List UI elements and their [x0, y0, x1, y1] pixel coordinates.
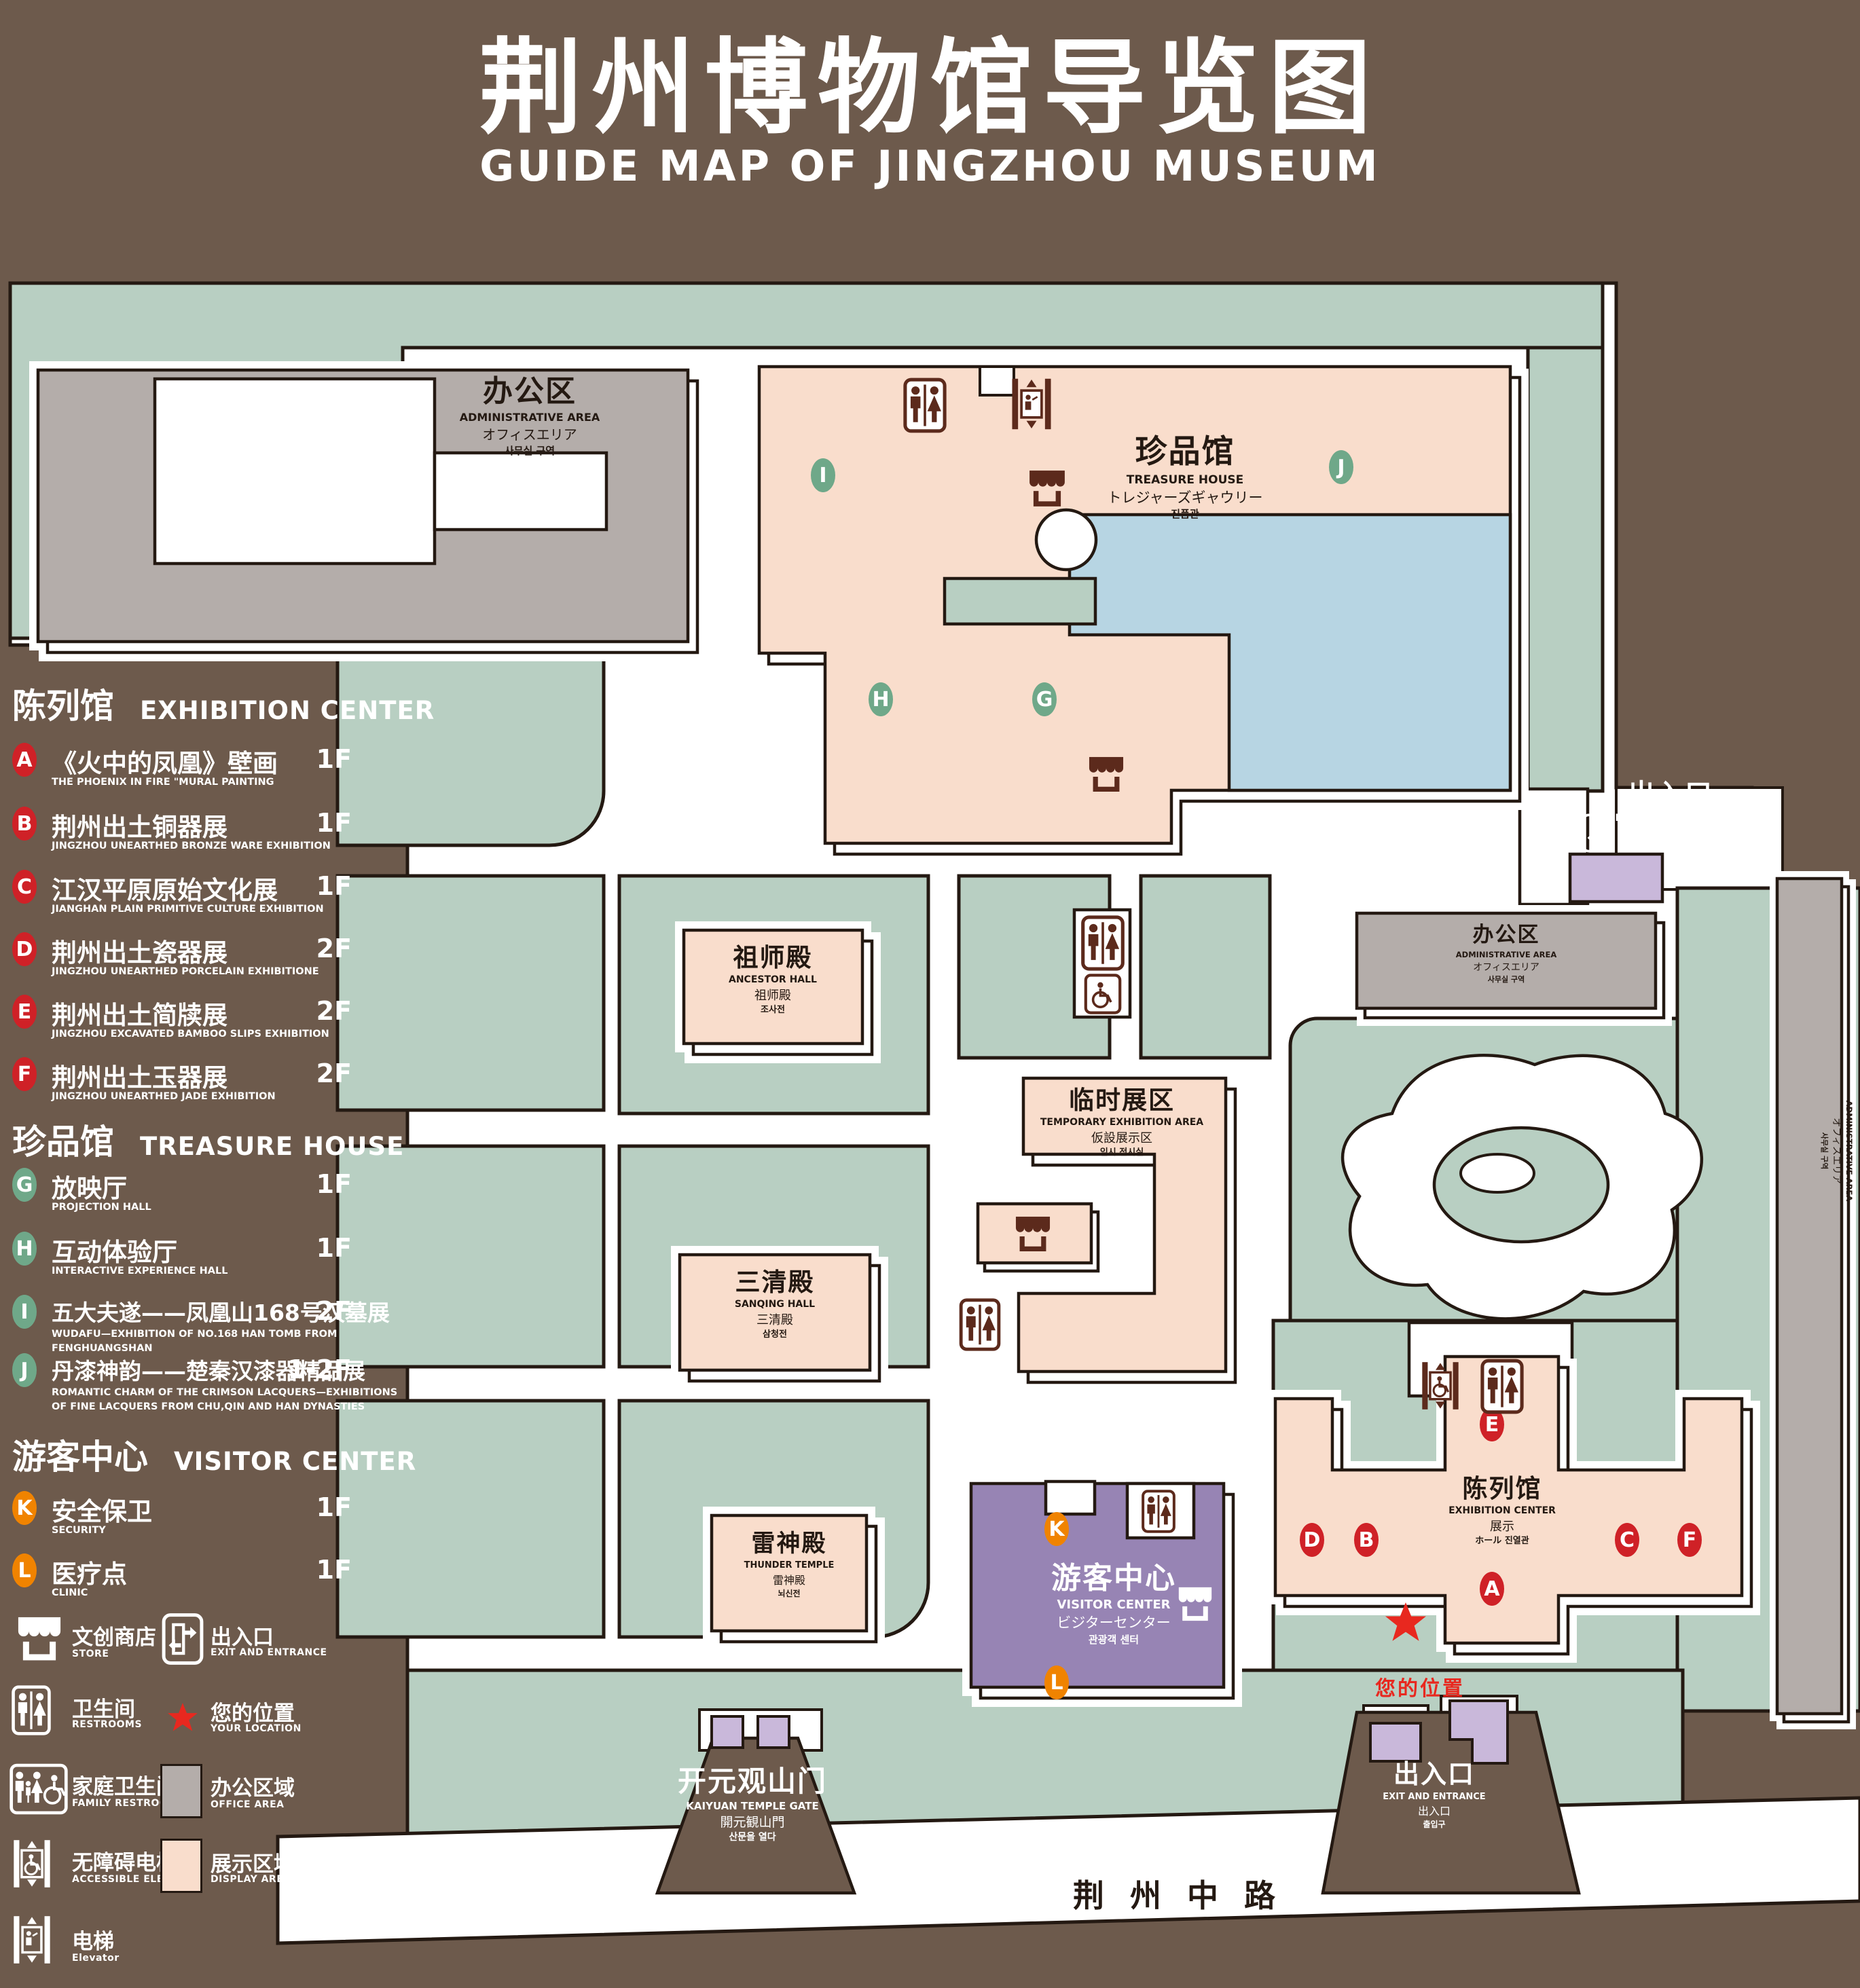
family-restroom-icon: [1081, 974, 1125, 1014]
kaiyuan-gate-label: 开元观山门 KAIYUAN TEMPLE GATE 開元観山門 산문을 열다: [651, 1765, 854, 1843]
legend-heading-visitor: 游客中心VISITOR CENTER: [12, 1430, 416, 1479]
admin-right-strip-label: 办公区 ADMINISTRATIVE AREA オフィスエリア 사무실 구역: [1779, 1151, 1840, 1436]
exit-bottom-right-label: 出入口 EXIT AND ENTRANCE 出入口 출입구: [1332, 1760, 1536, 1829]
accessible-elevator-icon: [1421, 1358, 1460, 1414]
exit-icon: [162, 1612, 204, 1666]
your-location-star-icon: [1384, 1602, 1427, 1643]
exhibition-center-label: 陈列馆 EXHIBITION CENTER 展示 ホール 진열관: [1366, 1475, 1638, 1547]
marker-l: L: [1044, 1665, 1069, 1699]
elevator-icon: [1010, 375, 1053, 433]
elevator-label: 电梯: [72, 1924, 114, 1955]
legend-heading-treasure: 珍品馆TREASURE HOUSE: [12, 1115, 404, 1164]
accessible-elevator-icon: [12, 1836, 52, 1892]
marker-d: D: [1300, 1523, 1324, 1557]
family-restroom-icon: [10, 1763, 68, 1816]
marker-g: G: [1032, 682, 1057, 716]
guide-map-poster: 荆州博物馆导览图 GUIDE MAP OF JINGZHOU MUSEUM 陈列…: [0, 0, 1860, 1988]
elevator-icon: [12, 1912, 52, 1968]
exit-label: 出入口: [211, 1620, 274, 1651]
thunder-temple-label: 雷神殿 THUNDER TEMPLE 雷神殿 뇌신전: [670, 1531, 908, 1598]
marker-b: B: [1354, 1523, 1379, 1557]
store-icon: [1087, 750, 1126, 798]
office-area-swatch: [160, 1764, 202, 1818]
store-icon: [1013, 1210, 1053, 1257]
store-icon: [15, 1615, 64, 1662]
your-location-text: 您的位置: [1375, 1672, 1465, 1701]
restroom-icon: [1080, 915, 1126, 971]
marker-i: I: [811, 458, 835, 492]
store-label: 文创商店: [72, 1620, 156, 1651]
restrooms-label: 卫生间: [72, 1692, 135, 1723]
location-star-icon: [167, 1701, 198, 1734]
map-canvas: [0, 0, 1860, 1988]
restroom-icon: [959, 1298, 1001, 1351]
display-area-swatch: [160, 1839, 202, 1893]
restroom-icon: [11, 1685, 52, 1735]
marker-h: H: [869, 682, 893, 716]
exit-icon: [1580, 813, 1616, 853]
restroom-icon: [1480, 1358, 1524, 1415]
page-subtitle: GUIDE MAP OF JINGZHOU MUSEUM: [0, 141, 1860, 191]
marker-a: A: [1480, 1572, 1504, 1606]
marker-j: J: [1329, 450, 1353, 484]
restroom-icon: [1139, 1490, 1178, 1533]
marker-c: C: [1615, 1523, 1639, 1557]
restroom-icon: [903, 378, 947, 433]
store-icon: [1176, 1582, 1214, 1625]
temporary-exhibition-label: 临时展区 TEMPORARY EXHIBITION AREA 仮設展示区 임시 …: [986, 1086, 1258, 1158]
admin-top-left-label: 办公区 ADMINISTRATIVE AREA オフィスエリア 사무실 구역: [360, 375, 699, 456]
marker-f: F: [1677, 1523, 1702, 1557]
office-area-label: 办公区域: [211, 1771, 295, 1801]
legend-heading-exhibition: 陈列馆EXHIBITION CENTER: [12, 679, 435, 728]
display-area-label: 展示区域: [211, 1847, 295, 1877]
marker-k: K: [1044, 1512, 1069, 1546]
road-label: 荆州中路: [1073, 1871, 1301, 1916]
admin-mid-right-label: 办公区 ADMINISTRATIVE AREA オフィスエリア 사무실 구역: [1370, 923, 1642, 984]
sanqing-hall-label: 三清殿 SANQING HALL 三清殿 삼청전: [639, 1268, 911, 1340]
store-icon: [1027, 463, 1068, 513]
ancestor-hall-label: 祖师殿 ANCESTOR HALL 祖师殿 조사전: [637, 944, 909, 1016]
your-location-label: 您的位置: [211, 1696, 295, 1727]
page-title: 荆州博物馆导览图: [0, 4, 1860, 153]
